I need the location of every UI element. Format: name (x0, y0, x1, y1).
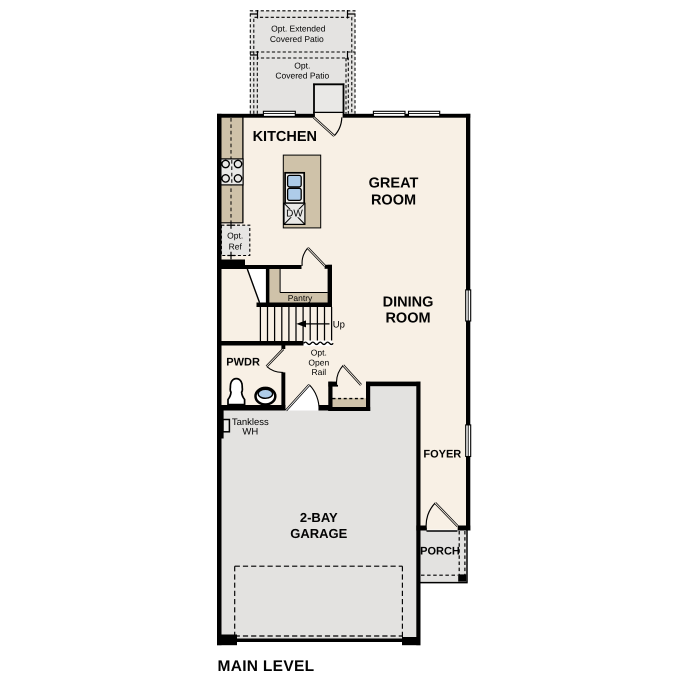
svg-text:Opt. Extended: Opt. Extended (271, 23, 326, 33)
svg-text:Open: Open (308, 358, 329, 368)
svg-text:Opt.: Opt. (294, 61, 310, 71)
svg-text:FOYER: FOYER (423, 448, 461, 460)
svg-text:KITCHEN: KITCHEN (253, 129, 317, 145)
svg-text:Opt.: Opt. (311, 347, 327, 357)
svg-text:2-BAY: 2-BAY (300, 510, 338, 525)
svg-text:PWDR: PWDR (226, 356, 260, 368)
svg-text:MAIN LEVEL: MAIN LEVEL (218, 658, 315, 675)
svg-text:DW: DW (286, 208, 303, 219)
svg-text:Up: Up (333, 319, 345, 330)
svg-text:Rail: Rail (311, 367, 326, 377)
svg-text:Opt.: Opt. (227, 231, 243, 241)
svg-text:PORCH: PORCH (420, 545, 460, 557)
svg-text:DINING: DINING (383, 295, 434, 311)
svg-text:Ref: Ref (229, 241, 243, 251)
svg-text:ROOM: ROOM (385, 311, 430, 327)
svg-text:GREAT: GREAT (369, 176, 419, 192)
svg-text:Covered Patio: Covered Patio (270, 34, 324, 44)
svg-text:Pantry: Pantry (288, 293, 313, 303)
svg-text:Covered Patio: Covered Patio (275, 71, 329, 81)
svg-text:ROOM: ROOM (371, 192, 416, 208)
svg-text:GARAGE: GARAGE (290, 526, 347, 541)
svg-text:WH: WH (242, 427, 258, 438)
